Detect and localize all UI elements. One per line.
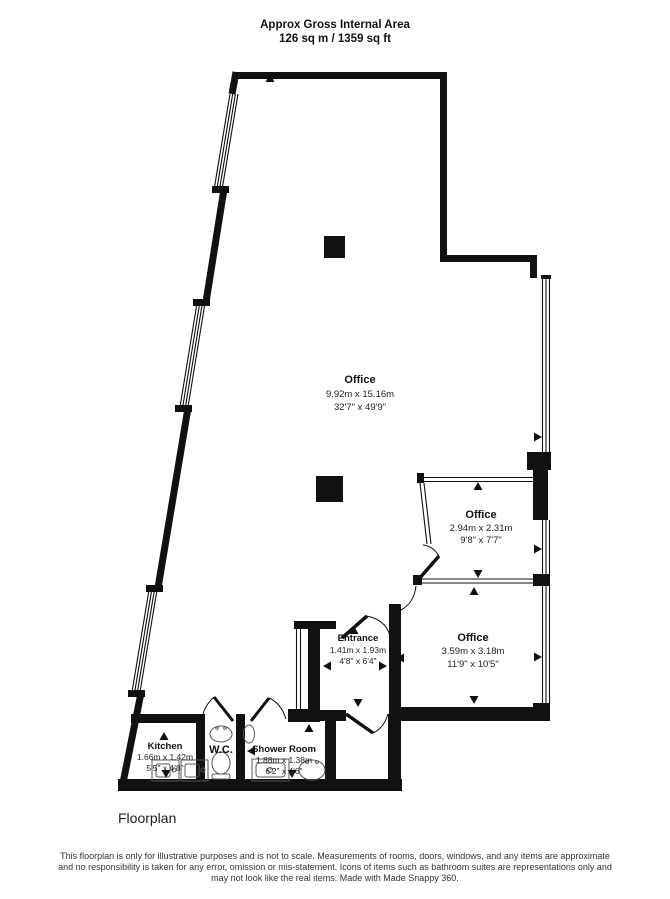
room-dim-metric: 1.41m x 1.93m	[330, 645, 386, 655]
arrow-up-icon	[474, 482, 483, 490]
room-office-mid: Office 3.59m x 3.18m 11'9" x 10'5"	[442, 632, 505, 670]
room-name: Kitchen	[148, 741, 183, 752]
arrow-right-icon	[379, 662, 387, 671]
floorplan-page: Approx Gross Internal Area 126 sq m / 13…	[0, 0, 670, 899]
room-dim-metric: 9.92m x 15.16m	[326, 389, 394, 400]
room-dim-imperial: 4'8" x 6'4"	[339, 656, 376, 666]
arrow-up-icon	[470, 587, 479, 595]
wc-basin-icon	[210, 726, 232, 742]
small-office-door	[418, 545, 439, 580]
arrow-left-icon	[323, 662, 331, 671]
shower-room-door	[251, 698, 286, 721]
arrow-down-icon	[474, 570, 483, 578]
room-office-small: Office 2.94m x 2.31m 9'8" x 7'7"	[450, 509, 513, 546]
arrow-right-icon	[534, 545, 542, 554]
arrow-up-icon	[160, 732, 169, 740]
room-dim-metric: 1.88m x 1.38m	[256, 755, 312, 765]
room-office-main: Office 9.92m x 15.16m 32'7" x 49'9"	[326, 374, 394, 413]
wc-toilet-icon	[212, 752, 230, 779]
floorplan-drawing: Office 9.92m x 15.16m 32'7" x 49'9" Offi…	[0, 0, 670, 899]
room-dim-metric: 2.94m x 2.31m	[450, 523, 513, 534]
room-name: Shower Room	[252, 744, 316, 755]
shower-basin-icon	[244, 725, 255, 743]
room-dim-metric: 3.59m x 3.18m	[442, 646, 505, 657]
disclaimer: This floorplan is only for illustrative …	[0, 851, 670, 884]
wc-door	[202, 697, 233, 721]
arrow-right-icon	[534, 433, 542, 442]
room-name: W.C.	[209, 744, 233, 756]
disclaimer-line: This floorplan is only for illustrative …	[0, 851, 670, 862]
disclaimer-line: and no responsibility is taken for any e…	[0, 862, 670, 873]
dimension-arrows	[160, 74, 543, 778]
column-icon	[324, 236, 345, 258]
floorplan-caption: Floorplan	[118, 810, 176, 826]
disclaimer-line: may not look like the real items. Made w…	[0, 873, 670, 884]
room-name: Office	[344, 374, 375, 386]
arrow-down-icon	[470, 696, 479, 704]
room-shower: Shower Room 1.88m x 1.38m 6'2" x 4'6"	[252, 744, 316, 776]
room-dim-imperial: 32'7" x 49'9"	[334, 402, 386, 413]
arrow-right-icon	[534, 653, 542, 662]
entrance-bottom-door	[346, 714, 388, 733]
doors	[202, 545, 439, 733]
office-mid-door-arc	[401, 586, 416, 610]
room-dim-imperial: 11'9" x 10'5"	[447, 659, 498, 670]
arrow-down-icon	[354, 699, 363, 707]
room-dim-imperial: 5'5" x 4'8"	[146, 763, 183, 773]
room-name: Office	[465, 509, 496, 521]
arrow-up-icon	[305, 724, 314, 732]
room-wc: W.C.	[209, 744, 233, 756]
room-dim-imperial: 6'2" x 4'6"	[265, 766, 302, 776]
room-name: Entrance	[338, 633, 379, 644]
room-entrance: Entrance 1.41m x 1.93m 4'8" x 6'4"	[330, 633, 386, 666]
structural-columns	[316, 236, 345, 502]
room-dim-metric: 1.66m x 1.42m	[137, 752, 193, 762]
exterior-walls	[123, 72, 537, 783]
room-dim-imperial: 9'8" x 7'7"	[460, 535, 502, 546]
column-icon	[316, 476, 343, 502]
room-name: Office	[457, 632, 488, 644]
